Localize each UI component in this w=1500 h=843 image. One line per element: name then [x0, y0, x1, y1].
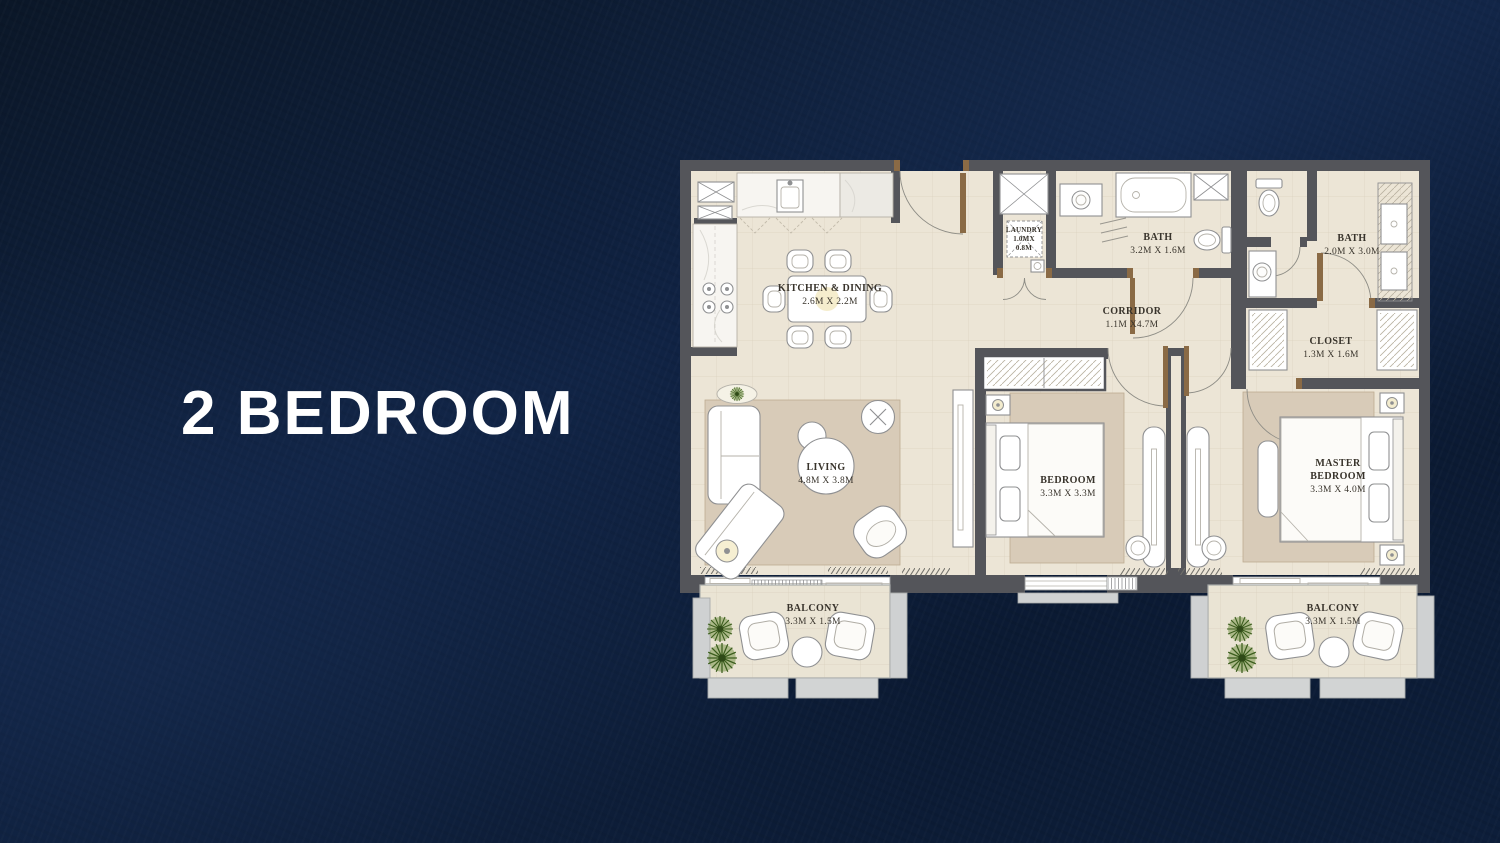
- planter-box: [708, 678, 788, 698]
- living-label: LIVING: [806, 462, 845, 473]
- pillow: [1369, 432, 1389, 470]
- balcony-pillar: [1417, 596, 1434, 678]
- page-background: 2 BEDROOM: [0, 0, 1500, 843]
- bedroom-window: [1018, 577, 1137, 603]
- master-label-1: MASTER: [1315, 458, 1361, 469]
- floor-plan: KITCHEN & DINING 2.6M X 2.2M LAUNDRY 1.0…: [680, 160, 1440, 705]
- shower-column: [1378, 183, 1412, 301]
- laundry-dims-2: 0.8M: [1016, 244, 1032, 252]
- pillow: [1000, 436, 1020, 470]
- wardrobe: [983, 356, 1105, 390]
- bedroom-dims: 3.3M X 3.3M: [1040, 489, 1096, 499]
- appliance-box: [698, 182, 734, 219]
- bath2-dims: 2.0M X 3.0M: [1324, 247, 1380, 257]
- bath2-door-leaf: [1317, 253, 1323, 301]
- planter-box: [1320, 678, 1405, 698]
- balcony-right: BALCONY 3.3M X 1.5M: [1191, 585, 1434, 698]
- corridor-dims: 1.1M X4.7M: [1106, 320, 1159, 330]
- tv-console: [953, 390, 973, 547]
- balcony-left-dims: 3.3M X 1.5M: [785, 617, 841, 627]
- bath1-label: BATH: [1143, 232, 1172, 243]
- bench: [1258, 441, 1278, 517]
- balcony-left: BALCONY 3.3M X 1.5M: [693, 585, 907, 698]
- bath-vanity: [1060, 184, 1102, 216]
- planter-box: [1225, 678, 1310, 698]
- master-door-leaf: [1184, 346, 1189, 396]
- balcony-pillar: [890, 593, 907, 678]
- planter-box: [796, 678, 878, 698]
- master-dims: 3.3M X 4.0M: [1310, 485, 1366, 495]
- corridor-label: CORRIDOR: [1103, 306, 1162, 317]
- pillow: [1369, 484, 1389, 522]
- balcony-pillar: [693, 598, 710, 678]
- living-dims: 4.8M X 3.8M: [798, 476, 854, 486]
- balcony-right-label: BALCONY: [1307, 603, 1360, 614]
- closet-dims: 1.3M X 1.6M: [1303, 350, 1359, 360]
- entry-door-leaf: [960, 173, 966, 233]
- ceiling-fan-icon: [862, 401, 895, 434]
- bedroom-label: BEDROOM: [1040, 475, 1096, 486]
- laundry-dims-1: 1.0MX: [1013, 235, 1034, 243]
- bath1-dims: 3.2M X 1.6M: [1130, 246, 1186, 256]
- master-label-2: BEDROOM: [1310, 471, 1366, 482]
- kitchen-sink: [777, 180, 803, 212]
- bath2-sink: [1249, 251, 1276, 297]
- bath2-label: BATH: [1337, 233, 1366, 244]
- kitchen-dims: 2.6M X 2.2M: [802, 297, 858, 307]
- balcony-pillar: [1191, 596, 1208, 678]
- closet-label: CLOSET: [1310, 336, 1353, 347]
- bedroom-door-leaf: [1163, 346, 1168, 408]
- balcony-table: [792, 637, 822, 667]
- balcony-table: [1319, 637, 1349, 667]
- plant-pot: [717, 385, 757, 404]
- bathtub: [1116, 173, 1191, 217]
- page-title: 2 BEDROOM: [181, 383, 574, 445]
- window-ledge: [1018, 593, 1118, 603]
- pillow: [1000, 487, 1020, 521]
- balcony-left-label: BALCONY: [787, 603, 840, 614]
- kitchen-label: KITCHEN & DINING: [778, 283, 882, 294]
- laundry-label: LAUNDRY: [1006, 226, 1042, 234]
- balcony-right-dims: 3.3M X 1.5M: [1305, 617, 1361, 627]
